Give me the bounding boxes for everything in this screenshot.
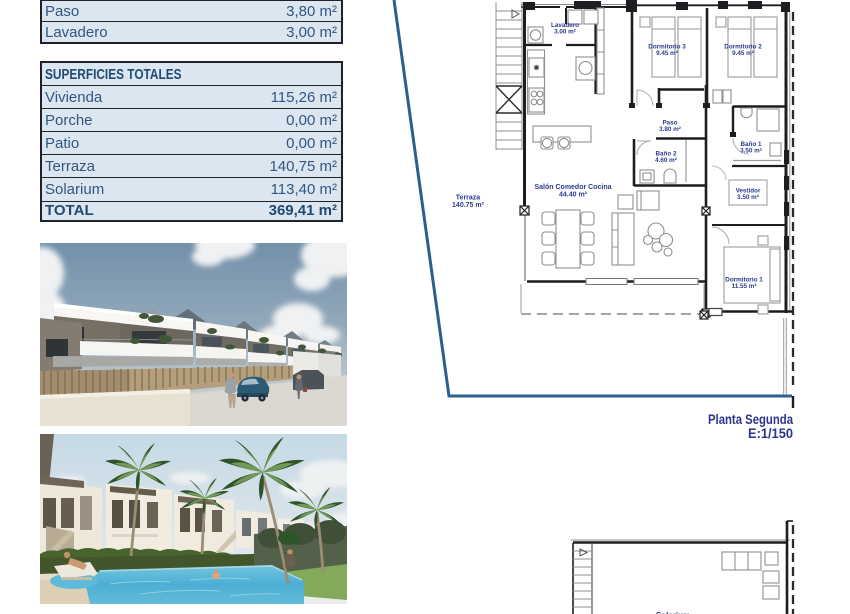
svg-text:44.40 m²: 44.40 m²: [559, 192, 588, 199]
svg-text:3.50 m²: 3.50 m²: [737, 194, 759, 201]
svg-text:Terraza: Terraza: [456, 195, 480, 202]
svg-text:E:1/150: E:1/150: [748, 426, 793, 441]
svg-text:9.45 m²: 9.45 m²: [656, 50, 678, 57]
svg-text:3.80 m²: 3.80 m²: [659, 126, 681, 133]
svg-text:3.50 m²: 3.50 m²: [740, 148, 762, 155]
svg-text:Planta Segunda: Planta Segunda: [708, 412, 793, 427]
svg-text:140.75 m²: 140.75 m²: [452, 202, 485, 209]
svg-text:Salón Comedor Cocina: Salón Comedor Cocina: [534, 184, 611, 191]
svg-text:3.00 m²: 3.00 m²: [554, 29, 576, 36]
svg-text:9.45 m²: 9.45 m²: [732, 50, 754, 57]
svg-text:4.60 m²: 4.60 m²: [655, 157, 677, 164]
svg-text:11.55 m²: 11.55 m²: [732, 283, 757, 290]
